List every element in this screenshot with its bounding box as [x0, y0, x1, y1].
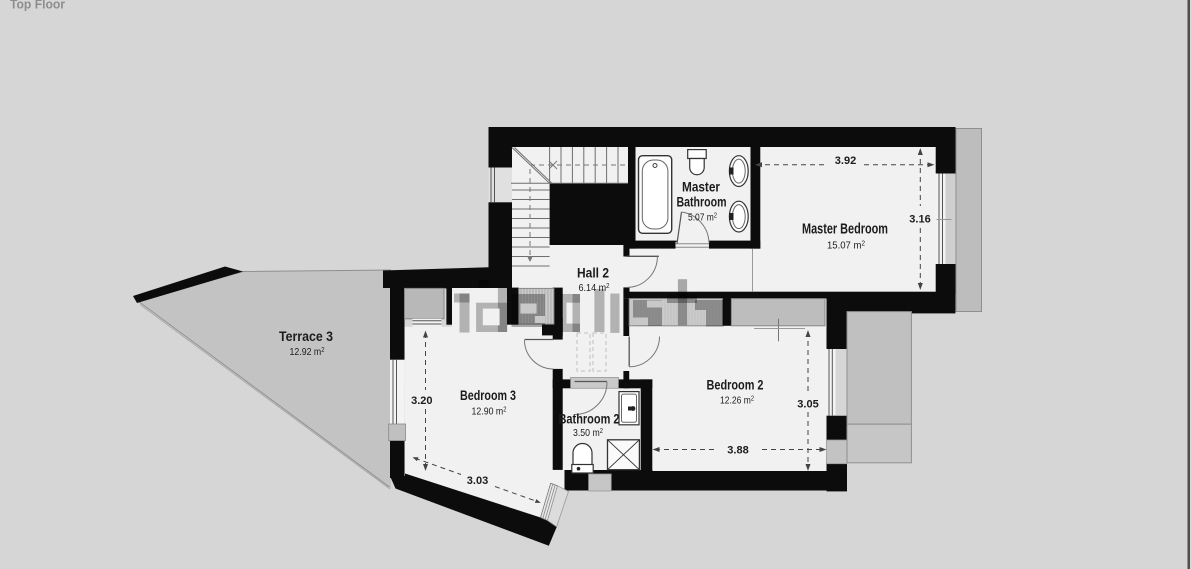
svg-text:Bedroom 2: Bedroom 2: [707, 378, 764, 393]
svg-text:Hall 2: Hall 2: [577, 266, 609, 281]
svg-text:15.07 m2: 15.07 m2: [827, 239, 865, 251]
svg-text:Terrace 3: Terrace 3: [279, 329, 333, 344]
svg-text:12.26 m2: 12.26 m2: [720, 395, 754, 407]
svg-text:Master: Master: [682, 180, 721, 195]
svg-text:3.88: 3.88: [727, 445, 748, 457]
svg-text:12.92 m2: 12.92 m2: [290, 346, 325, 358]
svg-text:12.90 m2: 12.90 m2: [471, 406, 506, 418]
svg-text:3.16: 3.16: [909, 214, 930, 226]
svg-text:Bathroom: Bathroom: [677, 195, 727, 210]
svg-text:Top Floor: Top Floor: [10, 0, 65, 12]
svg-text:5.07 m2: 5.07 m2: [688, 212, 717, 224]
svg-text:3.92: 3.92: [835, 155, 856, 167]
svg-text:Bathroom 2: Bathroom 2: [559, 412, 620, 427]
svg-text:Bedroom 3: Bedroom 3: [460, 388, 516, 403]
svg-text:3.50 m2: 3.50 m2: [573, 427, 603, 439]
svg-text:3.20: 3.20: [411, 395, 432, 407]
svg-text:Master Bedroom: Master Bedroom: [802, 222, 888, 238]
svg-text:3.03: 3.03: [467, 475, 488, 487]
svg-text:3.05: 3.05: [797, 399, 818, 411]
svg-text:6.14 m2: 6.14 m2: [579, 282, 610, 294]
